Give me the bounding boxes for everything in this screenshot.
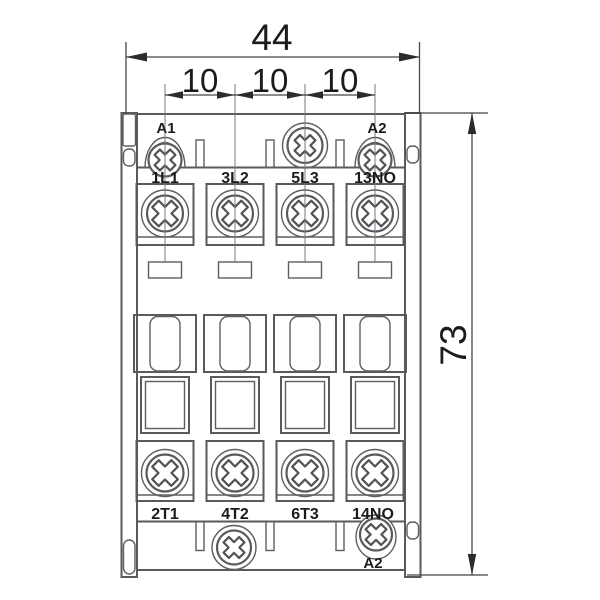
coil-label-a1: A1	[156, 120, 175, 137]
contactor-dimension-drawing: 44 10 10 10 73 A1 A2 A2 1L1 3L2 5L3 13NO…	[0, 0, 600, 600]
dim-total-width-label: 44	[251, 17, 292, 58]
dim-total-height-label: 73	[433, 324, 474, 365]
dim-pitch-label-1: 10	[182, 62, 219, 99]
terminal-label-1l1: 1L1	[151, 170, 179, 187]
mounting-screw-bottom	[212, 526, 256, 570]
terminal-label-14no: 14NO	[352, 506, 394, 523]
pole-centerlines	[165, 84, 375, 262]
dim-pitch-label-3: 10	[322, 62, 359, 99]
terminal-label-2t1: 2T1	[151, 506, 179, 523]
terminal-label-3l2: 3L2	[221, 170, 249, 187]
coil-label-a2-bottom: A2	[363, 555, 382, 572]
terminal-label-13no: 13NO	[354, 170, 396, 187]
coil-label-a2-top: A2	[367, 120, 386, 137]
terminal-label-4t2: 4T2	[221, 506, 249, 523]
terminal-label-5l3: 5L3	[291, 170, 319, 187]
din-rail-right	[405, 113, 421, 577]
dim-pitch-label-2: 10	[252, 62, 289, 99]
terminal-label-6t3: 6T3	[291, 506, 319, 523]
drawing-canvas: 44 10 10 10 73 A1 A2 A2 1L1 3L2 5L3 13NO…	[0, 0, 600, 600]
